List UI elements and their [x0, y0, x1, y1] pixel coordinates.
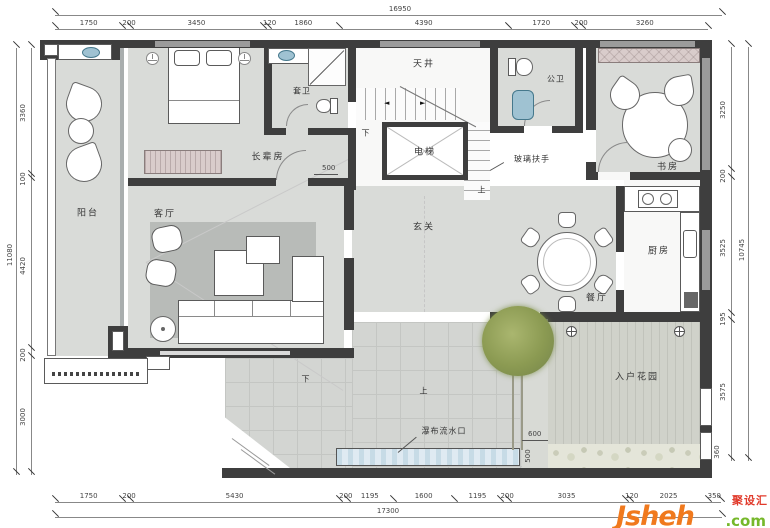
floorplan-sheet: ◄ ► 阳台 客厅 长辈房 套卫 天井 电梯 公卫 玻璃扶手 书房 玄关 厨房 … [0, 0, 770, 528]
dim-left-label: 3360 [19, 104, 27, 122]
dim-left-line [31, 48, 32, 475]
dim-top-label: 3260 [582, 19, 708, 27]
dim-left-total: 11080 [6, 244, 14, 266]
dim-left-label: 3000 [19, 408, 27, 426]
dim-bottom-total: 17300 [373, 507, 403, 515]
watermark-logo: Jsheh 聚设汇 .com [616, 492, 768, 528]
dim-bottom-label: 1750 [55, 492, 122, 500]
dim-top-label: 1720 [508, 19, 574, 27]
dim-left-total-line [16, 48, 17, 475]
dim-top-label: 3450 [130, 19, 263, 27]
dim-bottom-label: 1195 [454, 492, 500, 500]
dim-bottom-label: 1195 [347, 492, 393, 500]
watermark-brand: Jsheh [616, 501, 694, 528]
dim-right-label: 3575 [719, 383, 727, 401]
dim-bottom-label: 5430 [130, 492, 339, 500]
dim-bottom-label: 1600 [393, 492, 455, 500]
dim-top-label: 1860 [268, 19, 340, 27]
dim-top-total: 16950 [385, 5, 415, 13]
dim-right-label: 195 [719, 313, 727, 326]
dim-top-label: 4390 [339, 19, 508, 27]
dim-right-total-line [748, 47, 749, 461]
dim-right-label: 3250 [719, 101, 727, 119]
watermark-tld: .com [725, 512, 766, 528]
dim-right-label: 200 [719, 169, 727, 182]
dimension-chains: 1750200345012018604390172020032601750200… [0, 0, 770, 528]
dim-left-label: 4420 [19, 257, 27, 275]
dim-right-tick [728, 40, 735, 47]
dim-right-label: 3525 [719, 239, 727, 257]
dim-top-line [55, 29, 708, 30]
dim-right-line [731, 47, 732, 461]
dim-right-total: 10745 [738, 239, 746, 261]
dim-total-tick [52, 510, 59, 517]
dim-total-tick [52, 8, 59, 15]
dim-top-total-line [55, 15, 722, 16]
dim-left-label: 200 [19, 349, 27, 362]
watermark-cn: 聚设汇 [732, 492, 768, 508]
dim-left-label: 100 [19, 173, 27, 186]
dim-total-tick [13, 41, 20, 48]
dim-left-tick [28, 41, 35, 48]
dim-top-label: 1750 [55, 19, 122, 27]
dim-total-tick [719, 8, 726, 15]
dim-bottom-label: 3035 [508, 492, 625, 500]
dim-total-tick [745, 40, 752, 47]
